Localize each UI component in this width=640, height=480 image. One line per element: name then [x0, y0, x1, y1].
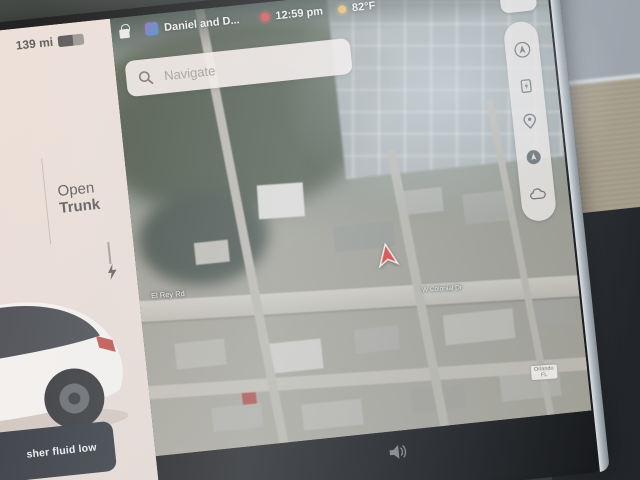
trunk-label-line2: Trunk: [59, 196, 101, 217]
charging-station-icon[interactable]: [517, 76, 536, 95]
washer-fluid-alert[interactable]: sher fluid low: [0, 421, 117, 480]
cloud-icon[interactable]: [528, 184, 547, 203]
place-label: Orlando FL: [531, 364, 557, 380]
clock: 12:59 pm: [275, 5, 324, 22]
range-text: 139 mi: [15, 35, 54, 53]
sun-icon: [338, 5, 347, 14]
speaker-icon[interactable]: [388, 442, 410, 462]
lock-icon: [119, 29, 130, 39]
open-trunk-button[interactable]: Open Trunk: [41, 153, 104, 244]
outside-temperature[interactable]: 82°F: [351, 0, 375, 14]
navigate-send-icon[interactable]: [513, 40, 532, 59]
red-nav-arrow: [374, 241, 400, 268]
navigation-map[interactable]: El Rey Rd W Colonial Dr Orlando FL Danie…: [110, 0, 592, 456]
search-input[interactable]: [161, 51, 312, 84]
connected-phone-name[interactable]: Daniel and D...: [164, 14, 241, 34]
alert-text: sher fluid low: [26, 441, 97, 460]
photo-of-tesla-screen: 139 mi Open Trunk: [0, 0, 640, 480]
locate-circle-icon[interactable]: [524, 148, 543, 167]
battery-icon: [57, 33, 84, 47]
recording-dot-icon[interactable]: [260, 12, 270, 22]
bluetooth-phone-icon[interactable]: [145, 22, 159, 36]
tesla-center-screen: 139 mi Open Trunk: [0, 0, 610, 480]
map-pin-icon[interactable]: [521, 112, 540, 131]
battery-range[interactable]: 139 mi: [15, 32, 84, 53]
magnifier-icon: [137, 69, 153, 85]
compass-heading-icon: [508, 0, 528, 5]
screen-content: 139 mi Open Trunk: [0, 0, 598, 480]
